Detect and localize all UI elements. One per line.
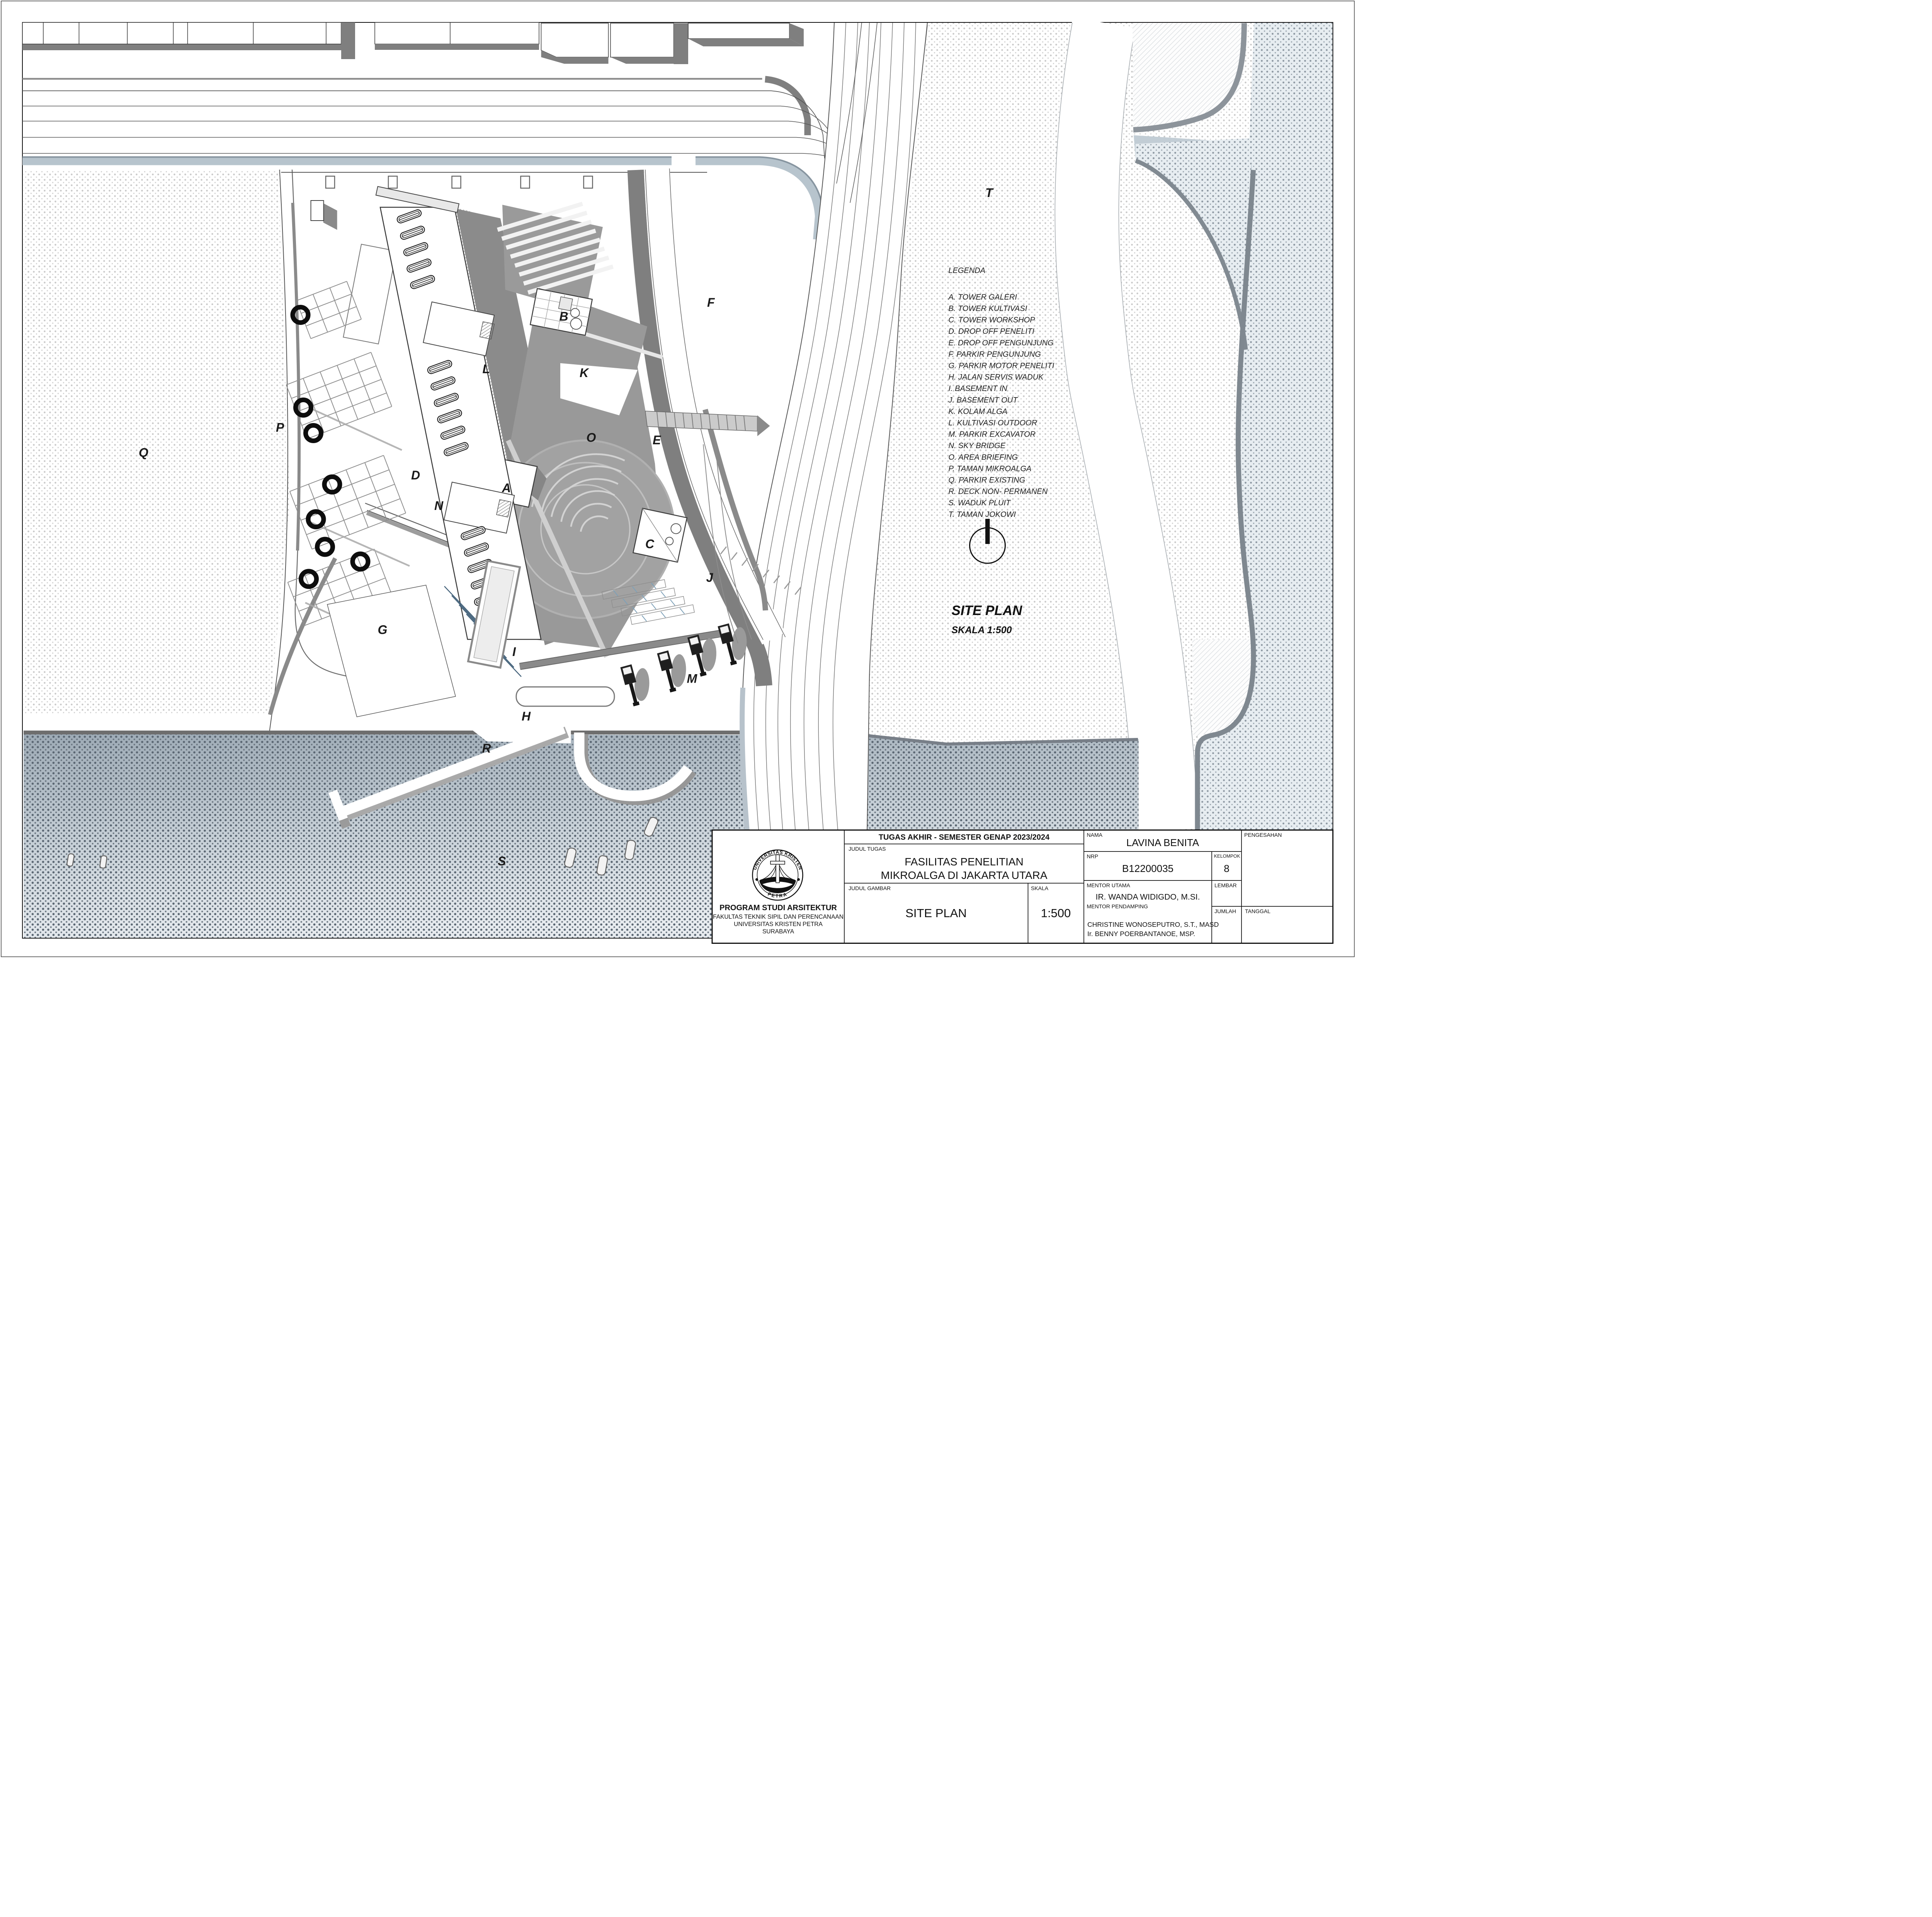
svg-text:K. KOLAM ALGA: K. KOLAM ALGA — [949, 408, 1008, 416]
svg-text:SITE PLAN: SITE PLAN — [905, 906, 967, 920]
svg-text:LEGENDA: LEGENDA — [949, 267, 986, 275]
svg-text:8: 8 — [1224, 863, 1229, 874]
svg-text:LAVINA BENITA: LAVINA BENITA — [1126, 837, 1199, 848]
svg-text:NRP: NRP — [1087, 853, 1099, 860]
svg-text:SURABAYA: SURABAYA — [762, 928, 794, 935]
svg-text:PROGRAM STUDI ARSITEKTUR: PROGRAM STUDI ARSITEKTUR — [719, 904, 837, 912]
svg-text:SITE PLAN: SITE PLAN — [952, 603, 1023, 618]
svg-text:D: D — [411, 468, 420, 482]
svg-text:C: C — [645, 537, 655, 551]
svg-text:I. BASEMENT IN: I. BASEMENT IN — [949, 384, 1008, 393]
svg-text:SKALA: SKALA — [1031, 885, 1049, 891]
svg-text:SKALA 1:500: SKALA 1:500 — [952, 625, 1012, 636]
svg-text:B. TOWER KULTIVASI: B. TOWER KULTIVASI — [949, 304, 1027, 313]
svg-text:B12200035: B12200035 — [1122, 863, 1173, 874]
svg-text:T. TAMAN JOKOWI: T. TAMAN JOKOWI — [949, 510, 1016, 519]
svg-text:S: S — [498, 854, 506, 868]
svg-text:1:500: 1:500 — [1041, 906, 1071, 920]
svg-text:H. JALAN SERVIS WADUK: H. JALAN SERVIS WADUK — [949, 373, 1044, 382]
svg-text:IR. WANDA WIDIGDO, M.SI.: IR. WANDA WIDIGDO, M.SI. — [1096, 893, 1200, 902]
svg-text:Ir. BENNY POERBANTANOE, MSP.: Ir. BENNY POERBANTANOE, MSP. — [1087, 930, 1195, 938]
svg-text:H: H — [522, 709, 531, 723]
svg-text:JUDUL GAMBAR: JUDUL GAMBAR — [849, 885, 891, 891]
svg-text:S. WADUK PLUIT: S. WADUK PLUIT — [949, 499, 1012, 507]
svg-text:JUDUL TUGAS: JUDUL TUGAS — [849, 846, 886, 852]
svg-text:P. TAMAN MIKROALGA: P. TAMAN MIKROALGA — [949, 465, 1032, 473]
svg-text:TANGGAL: TANGGAL — [1245, 908, 1270, 914]
svg-text:MENTOR PENDAMPING: MENTOR PENDAMPING — [1087, 903, 1148, 909]
svg-text:G. PARKIR MOTOR PENELITI: G. PARKIR MOTOR PENELITI — [949, 362, 1054, 370]
svg-text:I: I — [512, 645, 516, 659]
svg-text:UNIVERSITAS KRISTEN PETRA: UNIVERSITAS KRISTEN PETRA — [734, 921, 823, 928]
svg-text:R. DECK NON- PERMANEN: R. DECK NON- PERMANEN — [949, 488, 1048, 496]
svg-text:L: L — [483, 362, 490, 376]
svg-text:M. PARKIR EXCAVATOR: M. PARKIR EXCAVATOR — [949, 430, 1036, 439]
svg-text:Q: Q — [139, 446, 148, 460]
svg-text:CHRISTINE WONOSEPUTRO, S.T., M: CHRISTINE WONOSEPUTRO, S.T., MASD — [1087, 921, 1219, 928]
svg-text:PENGESAHAN: PENGESAHAN — [1244, 832, 1282, 838]
svg-text:N. SKY BRIDGE: N. SKY BRIDGE — [949, 442, 1006, 450]
svg-text:NAMA: NAMA — [1087, 832, 1103, 838]
svg-text:O: O — [587, 431, 596, 445]
svg-text:O. AREA BRIEFING: O. AREA BRIEFING — [949, 453, 1018, 462]
svg-text:M: M — [687, 672, 698, 686]
svg-text:K: K — [580, 366, 590, 380]
svg-text:F. PARKIR PENGUNJUNG: F. PARKIR PENGUNJUNG — [949, 350, 1041, 359]
svg-text:FASILITAS PENELITIAN: FASILITAS PENELITIAN — [905, 856, 1024, 868]
svg-text:D. DROP OFF PENELITI: D. DROP OFF PENELITI — [949, 327, 1035, 336]
svg-text:TUGAS AKHIR - SEMESTER GENAP 2: TUGAS AKHIR - SEMESTER GENAP 2023/2024 — [879, 833, 1050, 842]
svg-text:E. DROP OFF PENGUNJUNG: E. DROP OFF PENGUNJUNG — [949, 339, 1054, 347]
svg-text:N: N — [434, 499, 444, 513]
svg-text:A: A — [502, 481, 511, 495]
svg-text:B: B — [560, 309, 568, 323]
svg-text:FAKULTAS TEKNIK SIPIL DAN PERE: FAKULTAS TEKNIK SIPIL DAN PERENCANAAN — [713, 914, 844, 920]
svg-text:A. TOWER GALERI: A. TOWER GALERI — [948, 293, 1017, 302]
svg-text:JUMLAH: JUMLAH — [1214, 908, 1236, 914]
svg-text:F: F — [707, 296, 715, 309]
svg-text:C. TOWER WORKSHOP: C. TOWER WORKSHOP — [949, 316, 1036, 325]
svg-text:G: G — [378, 623, 388, 637]
svg-text:MIKROALGA DI JAKARTA UTARA: MIKROALGA DI JAKARTA UTARA — [881, 869, 1048, 881]
svg-text:L. KULTIVASI OUTDOOR: L. KULTIVASI OUTDOOR — [949, 419, 1037, 427]
svg-text:P: P — [276, 421, 284, 435]
svg-text:J. BASEMENT OUT: J. BASEMENT OUT — [948, 396, 1019, 404]
svg-text:MENTOR UTAMA: MENTOR UTAMA — [1087, 882, 1131, 889]
svg-text:LEMBAR: LEMBAR — [1214, 882, 1237, 889]
svg-text:Q. PARKIR EXISTING: Q. PARKIR EXISTING — [949, 476, 1026, 484]
svg-text:E: E — [653, 433, 662, 447]
svg-text:J: J — [706, 571, 714, 585]
svg-text:R: R — [482, 741, 491, 755]
svg-text:KELOMPOK: KELOMPOK — [1214, 853, 1240, 859]
svg-text:T: T — [985, 186, 994, 200]
